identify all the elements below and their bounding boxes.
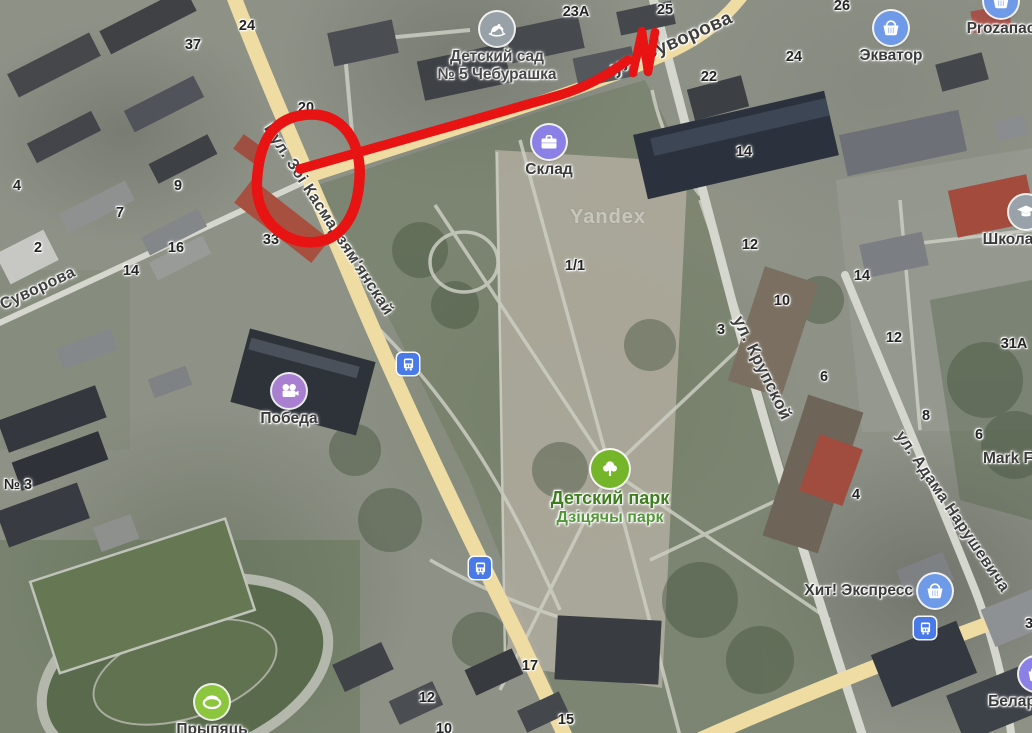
house-number-label: 3 bbox=[1025, 616, 1032, 632]
hit-express-label: Хит! Экспресс bbox=[804, 582, 913, 600]
street-name-label: ул. Крупской bbox=[728, 313, 796, 423]
street-name-label: Суворова bbox=[0, 264, 79, 315]
transit-stop-icon[interactable] bbox=[469, 557, 491, 579]
basket-icon[interactable] bbox=[874, 11, 908, 45]
poi-label-line: № 5 Чебурашка bbox=[438, 66, 557, 84]
house-number-label: 6 bbox=[975, 427, 983, 443]
house-number-label: 33 bbox=[263, 232, 279, 248]
ekvator-label: Экватор bbox=[859, 47, 922, 65]
rocking-horse-icon[interactable] bbox=[480, 12, 514, 46]
graduation-cap-icon[interactable] bbox=[1009, 195, 1032, 229]
poi-label-line: Школа bbox=[983, 231, 1032, 249]
house-number-label: 22 bbox=[701, 69, 717, 85]
house-number-label: 14 bbox=[854, 268, 870, 284]
shkola-label: Школа bbox=[983, 231, 1032, 249]
street-name-label: Вул. Зоі Касмадзям'янскай bbox=[259, 121, 396, 319]
house-number-label: 20 bbox=[298, 100, 314, 116]
house-number-label: 8 bbox=[922, 408, 930, 424]
house-number-label: 12 bbox=[419, 690, 435, 706]
pobeda-label: Победа bbox=[260, 410, 317, 428]
house-number-label: 24 bbox=[239, 18, 255, 34]
poi-label-line: Дзіцячы парк bbox=[556, 509, 663, 527]
map-watermark: Yandex bbox=[570, 206, 646, 229]
poi-label-line: Mark F bbox=[983, 450, 1032, 468]
house-number-label: 16 bbox=[168, 240, 184, 256]
satellite-map-viewport[interactable]: ул. СувороваСувороваВул. Зоі Касмадзям'я… bbox=[0, 0, 1032, 733]
poi-label-line: Белар bbox=[988, 693, 1032, 711]
cinema-icon[interactable] bbox=[272, 374, 306, 408]
house-number-label: 2 bbox=[34, 240, 42, 256]
house-number-label: 10 bbox=[436, 721, 452, 733]
poi-label-line: Детский сад bbox=[450, 48, 544, 66]
house-number-label: 6 bbox=[820, 369, 828, 385]
house-number-label: 1/1 bbox=[565, 258, 585, 274]
briefcase-icon[interactable] bbox=[532, 125, 566, 159]
map-labels-layer: ул. СувороваСувороваВул. Зоі Касмадзям'я… bbox=[0, 0, 1032, 733]
basket-icon[interactable] bbox=[918, 574, 952, 608]
prypyat-label: Прыпяць bbox=[176, 721, 247, 733]
poi-label-line: Склад bbox=[525, 161, 572, 179]
transit-stop-icon[interactable] bbox=[914, 617, 936, 639]
detsky-park-label: Детский паркДзіцячы парк bbox=[551, 488, 669, 527]
poi-label-line: Детский парк bbox=[551, 488, 669, 509]
poi-label-line: Победа bbox=[260, 410, 317, 428]
house-number-label: 4 bbox=[852, 487, 860, 503]
house-number-label: 25 bbox=[657, 2, 673, 18]
house-number-label: 4 bbox=[13, 178, 21, 194]
kindergarten-label: Детский сад№ 5 Чебурашка bbox=[438, 48, 557, 83]
house-number-label: 24 bbox=[786, 49, 802, 65]
house-number-label: 14 bbox=[123, 263, 139, 279]
basket-icon[interactable] bbox=[984, 0, 1018, 18]
house-number-label: 7 bbox=[116, 205, 124, 221]
house-number-label: 9 bbox=[174, 178, 182, 194]
house-number-label: 15 bbox=[558, 712, 574, 728]
poi-label-line: Prozапас bbox=[967, 20, 1032, 38]
mark-f-label: Mark F bbox=[983, 450, 1032, 468]
house-number-label: № 3 bbox=[4, 477, 32, 493]
house-number-label: 37 bbox=[185, 37, 201, 53]
house-number-label: 26 bbox=[834, 0, 850, 14]
stadium-icon[interactable] bbox=[195, 685, 229, 719]
house-number-label: 12 bbox=[742, 237, 758, 253]
prozapas-label: Prozапас bbox=[967, 20, 1032, 38]
transit-stop-icon[interactable] bbox=[397, 353, 419, 375]
poi-label-line: Прыпяць bbox=[176, 721, 247, 733]
house-number-label: 12 bbox=[886, 330, 902, 346]
house-number-label: 3 bbox=[717, 322, 725, 338]
poi-label-line: Экватор bbox=[859, 47, 922, 65]
poi-label-line: Хит! Экспресс bbox=[804, 582, 913, 600]
belarus-label: Белар bbox=[988, 693, 1032, 711]
tree-icon[interactable] bbox=[591, 450, 629, 488]
basket-icon[interactable] bbox=[1019, 657, 1032, 691]
sklad-label: Склад bbox=[525, 161, 572, 179]
house-number-label: 14 bbox=[736, 144, 752, 160]
house-number-label: 10 bbox=[774, 293, 790, 309]
house-number-label: 23А bbox=[563, 4, 590, 20]
house-number-label: 31А bbox=[1001, 336, 1028, 352]
house-number-label: 17 bbox=[522, 658, 538, 674]
